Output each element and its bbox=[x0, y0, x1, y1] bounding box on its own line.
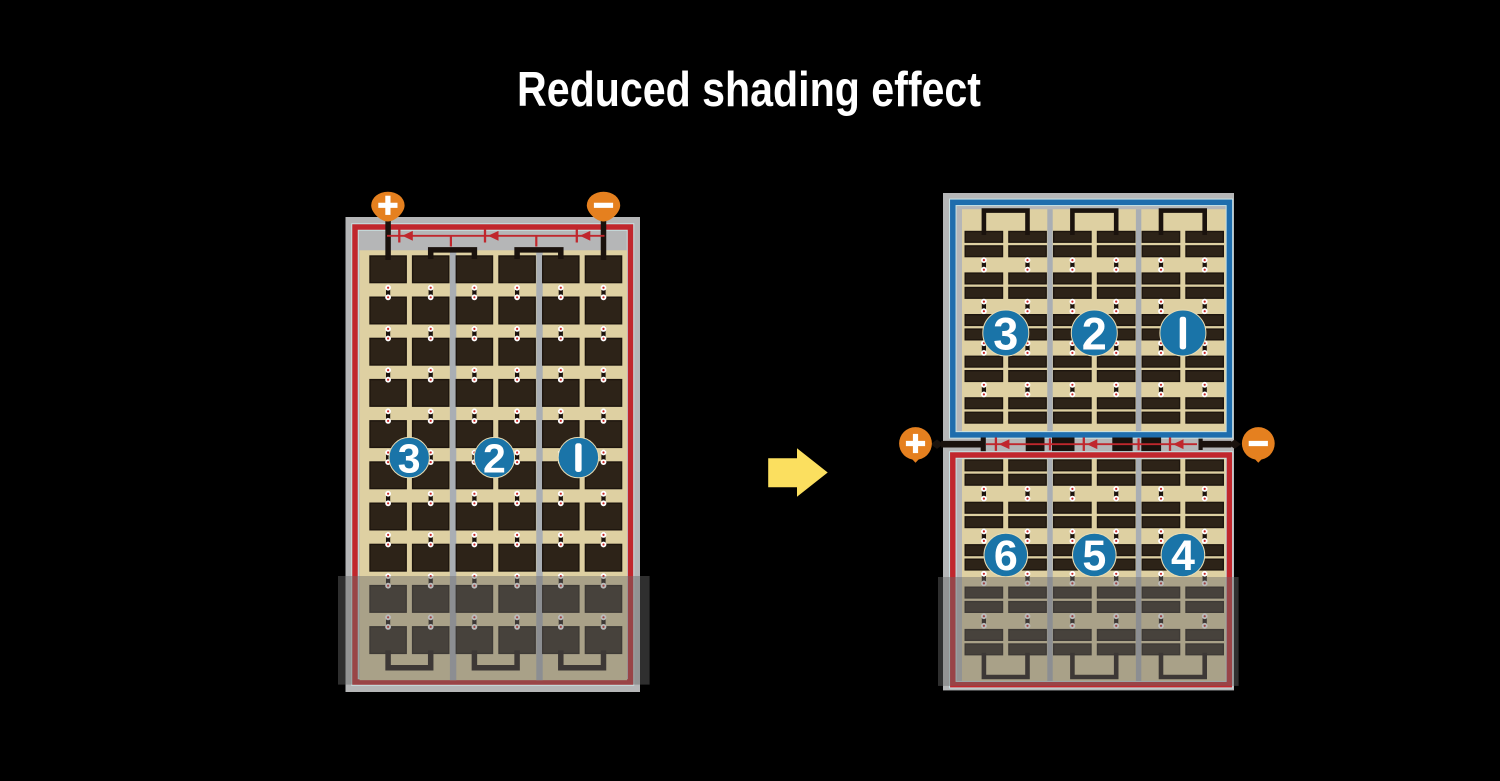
svg-text:3: 3 bbox=[993, 309, 1018, 360]
svg-text:6: 6 bbox=[994, 532, 1018, 580]
svg-text:2: 2 bbox=[1082, 309, 1107, 360]
svg-text:4: 4 bbox=[1171, 532, 1195, 580]
svg-text:3: 3 bbox=[398, 436, 421, 482]
svg-text:Reduced shading effect: Reduced shading effect bbox=[517, 63, 981, 117]
svg-text:5: 5 bbox=[1082, 532, 1106, 580]
svg-text:2: 2 bbox=[483, 436, 506, 482]
